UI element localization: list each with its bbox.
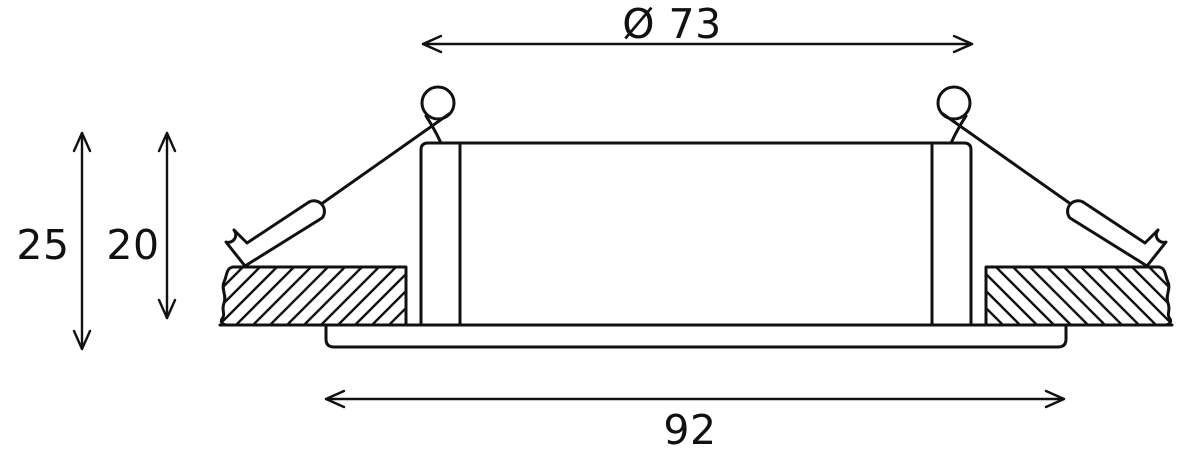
left-assembly: [221, 87, 454, 325]
ceiling-panel: [221, 267, 406, 325]
dimension-label-overall-height: 25: [16, 221, 69, 269]
dimension-label-bezel-diameter: 92: [663, 406, 716, 454]
bezel-flange: [326, 325, 1066, 347]
spring-wire-long: [317, 114, 449, 207]
fixture-body: [421, 143, 971, 325]
right-assembly: [938, 87, 1171, 325]
spring-clip-arm: [226, 201, 324, 266]
bezel-width-dimension: 92: [326, 391, 1064, 454]
dimension-drawing: Ø 73 25 20 92: [0, 0, 1200, 455]
dimension-label-diameter: Ø 73: [622, 0, 721, 48]
drawing-canvas: Ø 73 25 20 92: [0, 0, 1200, 455]
dimension-label-recess-depth: 20: [106, 221, 159, 269]
overall-height-dimension: 25: [16, 133, 90, 349]
recess-depth-dimension: 20: [106, 133, 175, 318]
cutout-diameter-dimension: Ø 73: [423, 0, 972, 52]
